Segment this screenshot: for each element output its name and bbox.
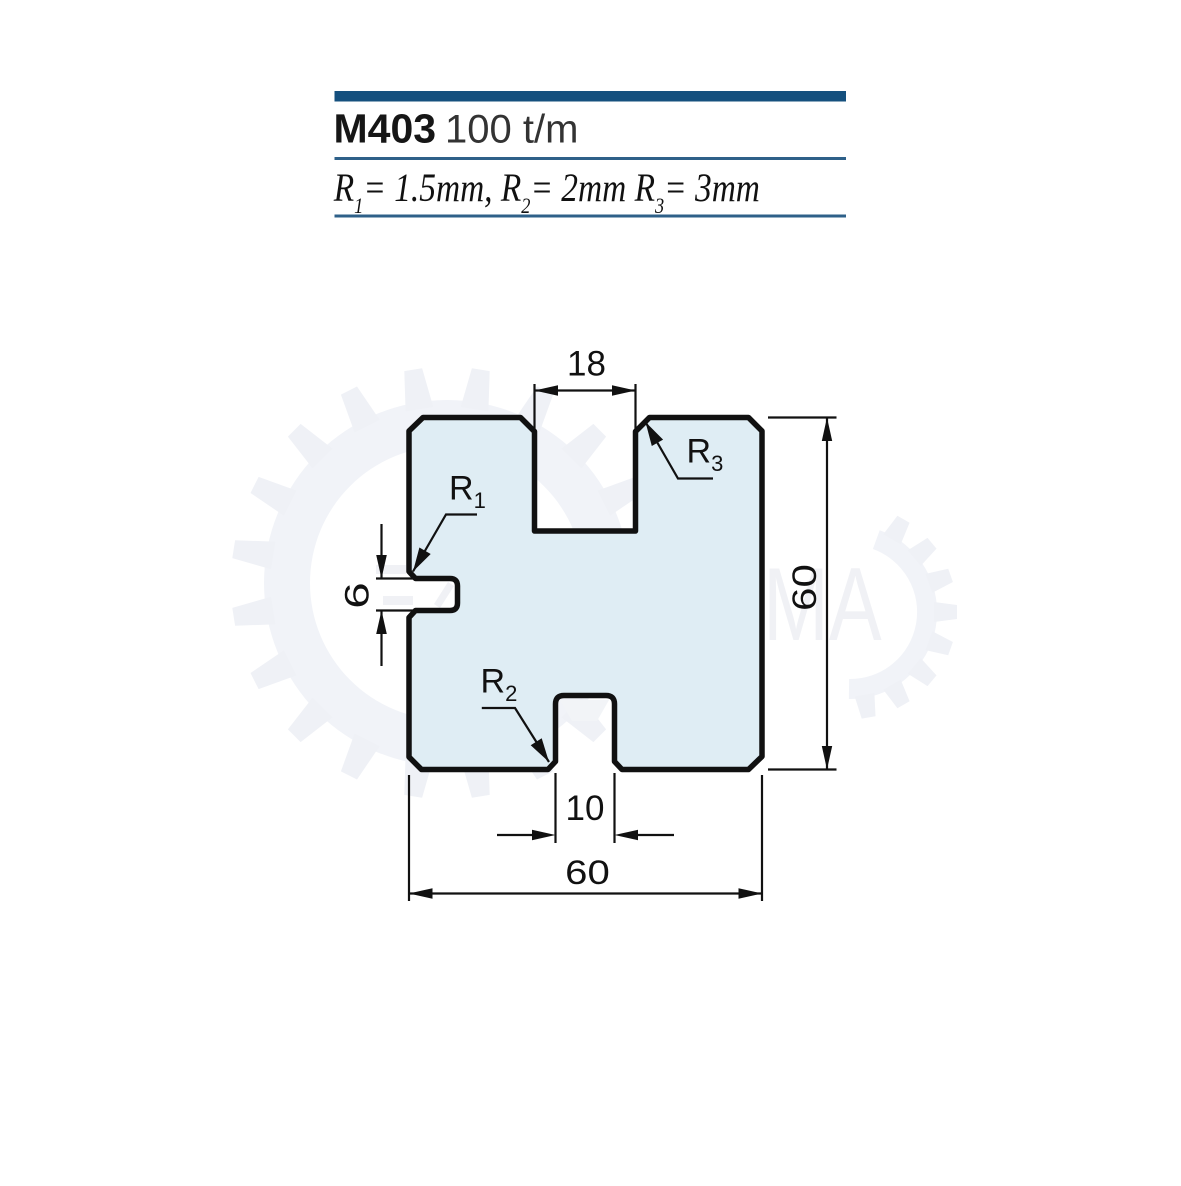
svg-text:M403: M403 — [334, 106, 437, 152]
svg-text:60: 60 — [786, 564, 824, 611]
svg-text:60: 60 — [565, 853, 610, 891]
svg-text:18: 18 — [567, 345, 606, 384]
svg-text:10: 10 — [566, 789, 605, 828]
svg-text:100 t/m: 100 t/m — [445, 108, 578, 152]
svg-text:6: 6 — [338, 582, 376, 608]
